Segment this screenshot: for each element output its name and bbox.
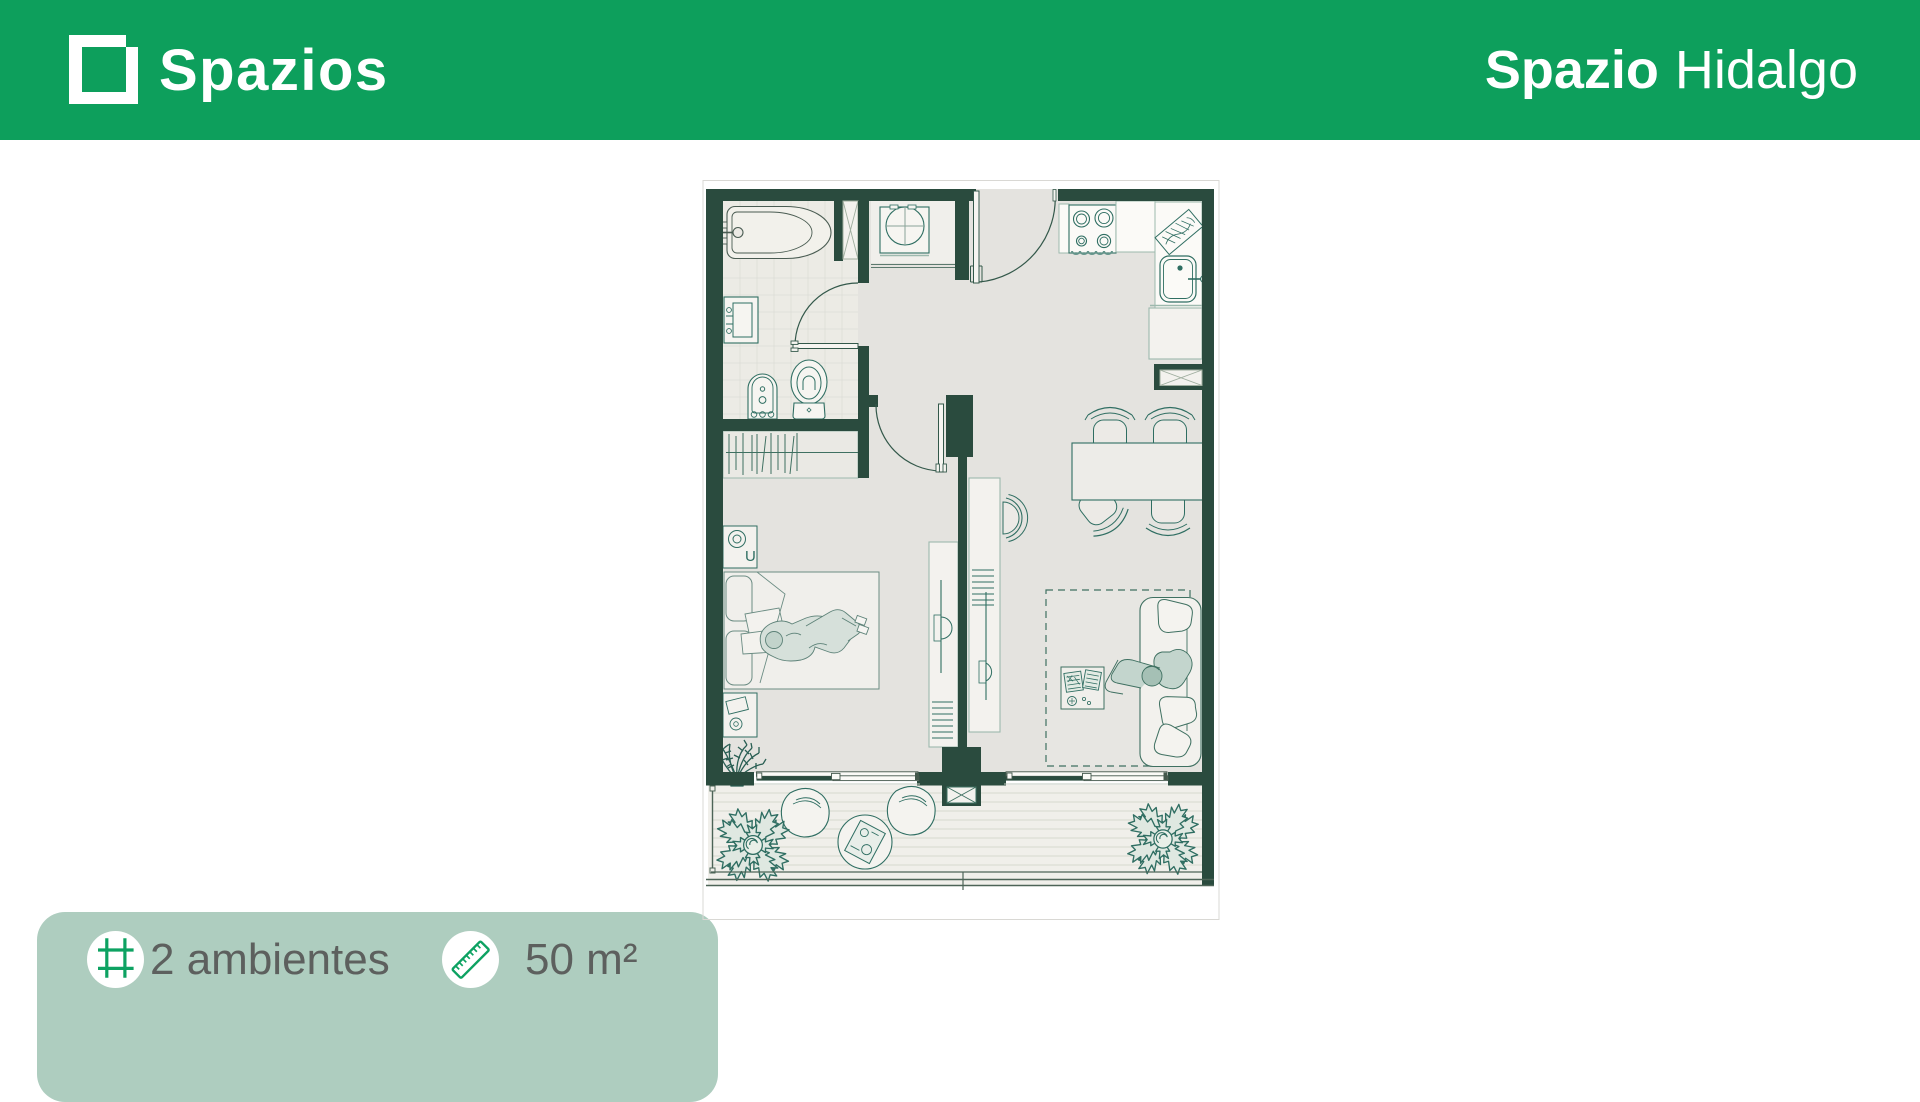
svg-text:U: U [745, 548, 756, 565]
